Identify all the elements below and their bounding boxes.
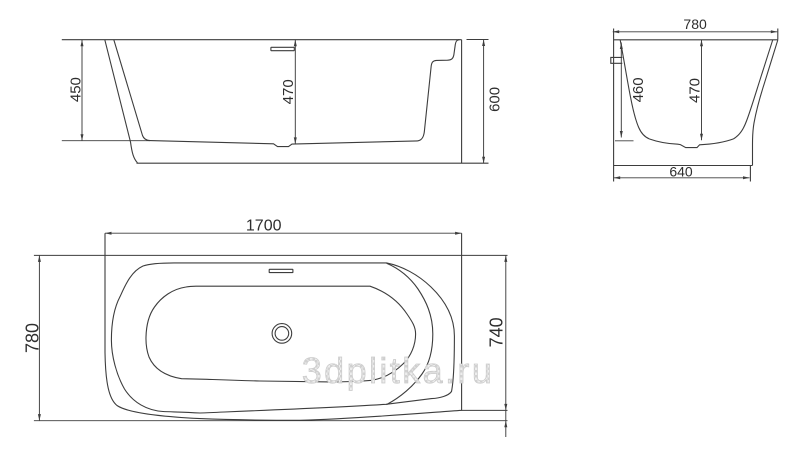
- svg-text:470: 470: [280, 79, 297, 104]
- svg-text:460: 460: [630, 77, 647, 102]
- svg-text:470: 470: [686, 78, 703, 103]
- svg-text:740: 740: [487, 317, 507, 347]
- svg-text:780: 780: [683, 16, 707, 32]
- svg-text:780: 780: [22, 323, 42, 353]
- svg-text:450: 450: [67, 77, 84, 102]
- svg-text:3dplitka.ru: 3dplitka.ru: [302, 350, 495, 391]
- svg-text:600: 600: [486, 87, 503, 112]
- svg-text:640: 640: [669, 163, 693, 179]
- svg-text:1700: 1700: [246, 218, 282, 235]
